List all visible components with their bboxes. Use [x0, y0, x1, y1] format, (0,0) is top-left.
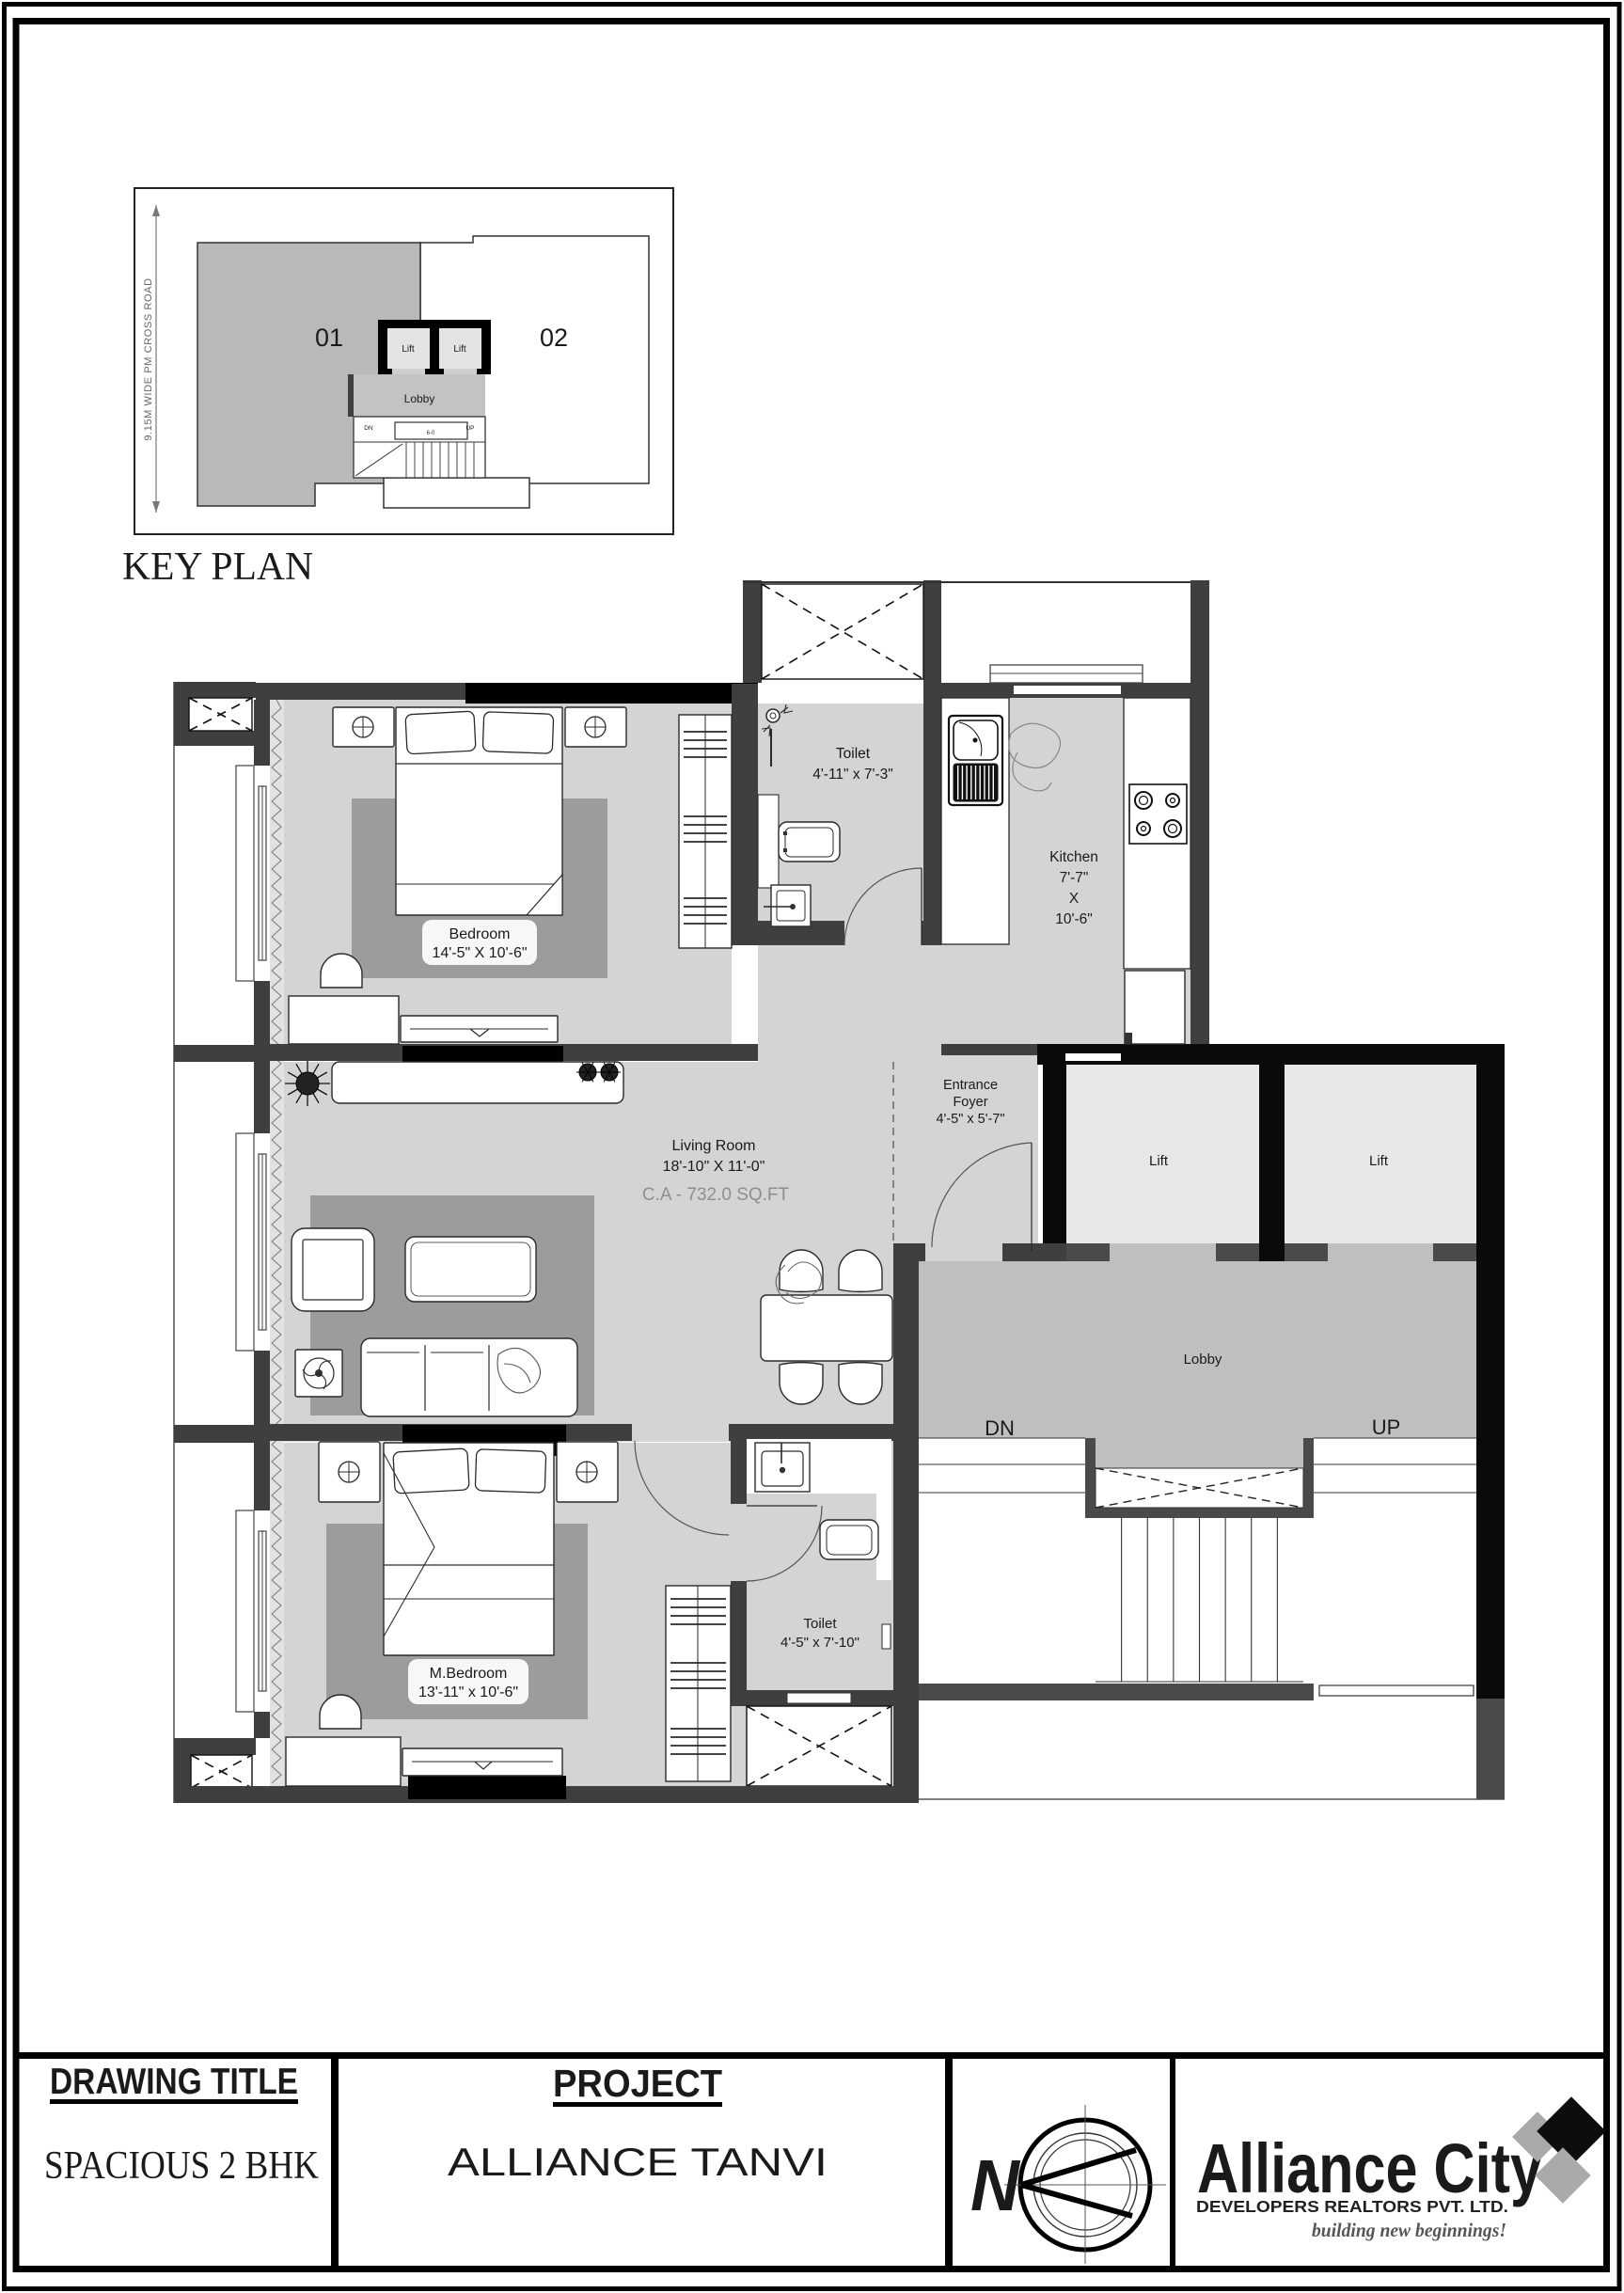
svg-text:02: 02 [540, 324, 568, 352]
svg-text:DN: DN [364, 425, 373, 432]
svg-text:X: X [1069, 891, 1080, 907]
svg-text:Bedroom: Bedroom [449, 926, 511, 942]
svg-text:M.Bedroom: M.Bedroom [430, 1666, 508, 1682]
svg-text:Living Room: Living Room [672, 1138, 756, 1154]
svg-text:7'-7": 7'-7" [1060, 870, 1089, 886]
svg-text:6-0: 6-0 [427, 431, 435, 436]
svg-text:Lobby: Lobby [1184, 1352, 1222, 1368]
svg-text:4'-5" x 5'-7": 4'-5" x 5'-7" [936, 1112, 1004, 1127]
svg-text:Toilet: Toilet [803, 1616, 837, 1632]
svg-text:Toilet: Toilet [836, 746, 871, 762]
svg-text:4'-5" x 7'-10": 4'-5" x 7'-10" [780, 1635, 859, 1651]
svg-text:Lobby: Lobby [404, 392, 435, 405]
svg-text:Lift: Lift [453, 344, 466, 355]
svg-text:10'-6": 10'-6" [1055, 911, 1092, 927]
svg-text:Lift: Lift [1149, 1153, 1169, 1169]
svg-text:UP: UP [1372, 1415, 1401, 1439]
svg-text:Entrance: Entrance [943, 1078, 998, 1093]
svg-text:ALLIANCE TANVI: ALLIANCE TANVI [448, 2140, 828, 2184]
svg-text:KEY PLAN: KEY PLAN [122, 546, 313, 589]
svg-text:13'-11" x 10'-6": 13'-11" x 10'-6" [418, 1684, 518, 1700]
svg-text:DEVELOPERS REALTORS PVT. LTD.: DEVELOPERS REALTORS PVT. LTD. [1196, 2197, 1508, 2216]
svg-text:Foyer: Foyer [953, 1095, 987, 1110]
svg-text:UP: UP [465, 425, 474, 432]
svg-text:01: 01 [315, 324, 343, 352]
svg-text:18'-10" X 11'-0": 18'-10" X 11'-0" [663, 1159, 765, 1175]
svg-text:PROJECT: PROJECT [553, 2062, 722, 2105]
svg-text:Lift: Lift [1369, 1153, 1389, 1169]
svg-text:DN: DN [985, 1416, 1015, 1440]
svg-text:N: N [970, 2145, 1020, 2226]
svg-text:C.A - 732.0 SQ.FT: C.A - 732.0 SQ.FT [642, 1185, 790, 1205]
svg-text:14'-5" X 10'-6": 14'-5" X 10'-6" [432, 945, 527, 961]
svg-text:building new beginnings!: building new beginnings! [1312, 2219, 1506, 2241]
svg-text:9.15M WIDE PM CROSS ROAD: 9.15M WIDE PM CROSS ROAD [143, 277, 154, 440]
svg-text:Kitchen: Kitchen [1049, 849, 1098, 865]
svg-text:DRAWING TITLE: DRAWING TITLE [50, 2062, 298, 2102]
svg-text:Lift: Lift [402, 344, 415, 355]
svg-text:SPACIOUS 2 BHK: SPACIOUS 2 BHK [44, 2144, 319, 2188]
svg-text:4'-11" x 7'-3": 4'-11" x 7'-3" [812, 767, 893, 783]
svg-text:Alliance City: Alliance City [1197, 2129, 1542, 2207]
